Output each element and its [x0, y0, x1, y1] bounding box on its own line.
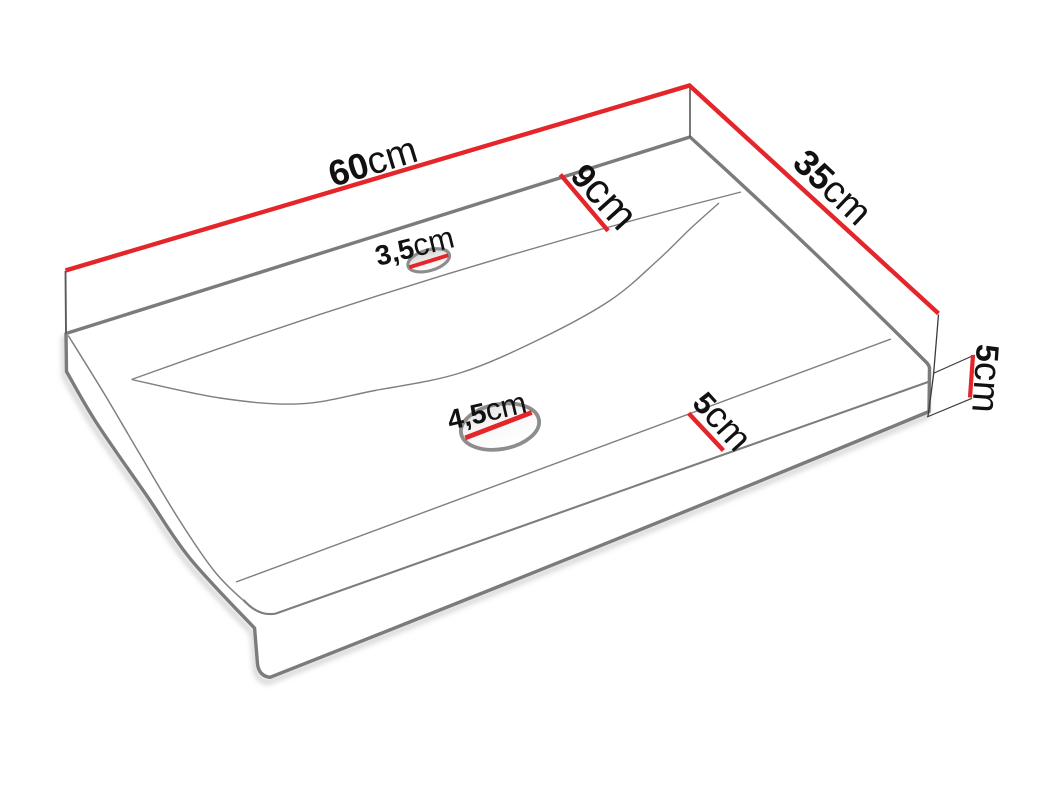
svg-text:5cm: 5cm: [963, 343, 1010, 414]
